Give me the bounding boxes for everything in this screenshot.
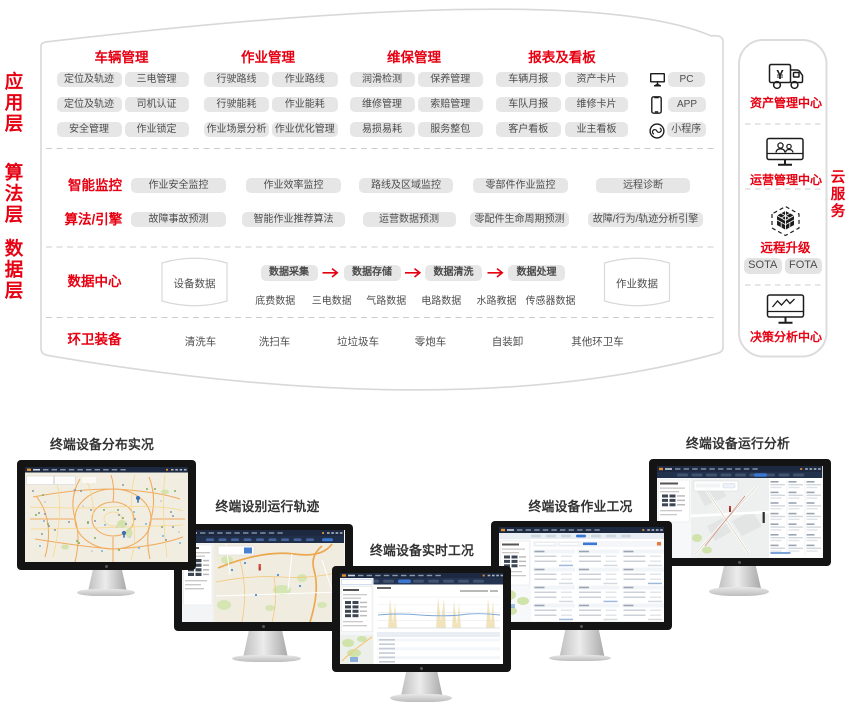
svg-text:¥: ¥	[776, 67, 784, 82]
